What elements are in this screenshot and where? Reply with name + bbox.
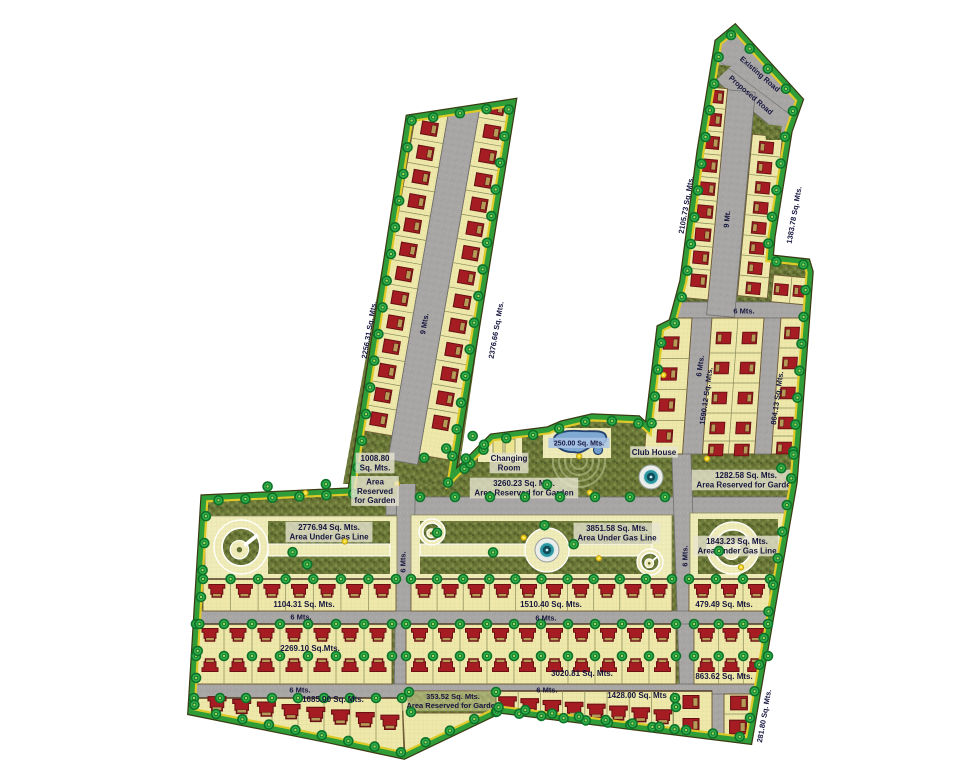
svg-text:2776.94 Sq. Mts.: 2776.94 Sq. Mts. [298,523,360,532]
svg-text:6 Mts.: 6 Mts. [535,614,556,623]
svg-text:3020.81 Sq. Mts.: 3020.81 Sq. Mts. [551,669,613,678]
svg-text:Sq. Mts.: Sq. Mts. [360,463,391,472]
svg-text:6 Mts.: 6 Mts. [536,686,557,695]
svg-text:9 Mt.: 9 Mt. [722,210,733,228]
svg-text:250.00 Sq. Mts.: 250.00 Sq. Mts. [554,441,604,448]
svg-text:Area Under Gas Line: Area Under Gas Line [289,532,369,541]
svg-text:6 Mts.: 6 Mts. [733,307,754,316]
svg-text:6 Mts.: 6 Mts. [290,613,311,622]
svg-text:479.49 Sq. Mts.: 479.49 Sq. Mts. [695,600,752,609]
svg-text:Area Reserved for Garden: Area Reserved for Garden [696,480,795,489]
svg-text:1428.00 Sq. Mts: 1428.00 Sq. Mts [607,691,667,700]
svg-text:1008.80: 1008.80 [361,454,390,463]
svg-text:Area Reserved for Garden: Area Reserved for Garden [407,701,500,710]
svg-text:1685.00 Sq. Mts.: 1685.00 Sq. Mts. [302,695,364,704]
svg-text:1843.23 Sq. Mts.: 1843.23 Sq. Mts. [706,537,768,546]
svg-text:353.52 Sq. Mts.: 353.52 Sq. Mts. [426,692,480,701]
svg-text:863.62 Sq. Mts.: 863.62 Sq. Mts. [695,672,752,681]
svg-text:6 Mts.: 6 Mts. [289,686,310,695]
svg-text:1282.58 Sq. Mts.: 1282.58 Sq. Mts. [715,471,777,480]
svg-text:1510.40 Sq. Mts.: 1510.40 Sq. Mts. [520,600,582,609]
svg-text:Area Under Gas Line: Area Under Gas Line [697,546,777,555]
svg-text:6 Mts.: 6 Mts. [681,545,690,566]
svg-text:Room: Room [498,463,521,472]
svg-text:3851.58 Sq. Mts.: 3851.58 Sq. Mts. [586,524,648,533]
svg-text:for Garden: for Garden [355,496,396,505]
svg-text:1104.31 Sq. Mts.: 1104.31 Sq. Mts. [273,600,334,609]
svg-text:Area Under Gas Line: Area Under Gas Line [577,533,657,542]
svg-text:Changing: Changing [491,454,528,463]
svg-text:6 Mts.: 6 Mts. [399,551,408,572]
svg-text:Reserved: Reserved [357,487,393,496]
svg-text:Club House: Club House [632,448,677,457]
svg-text:Area: Area [366,478,384,487]
